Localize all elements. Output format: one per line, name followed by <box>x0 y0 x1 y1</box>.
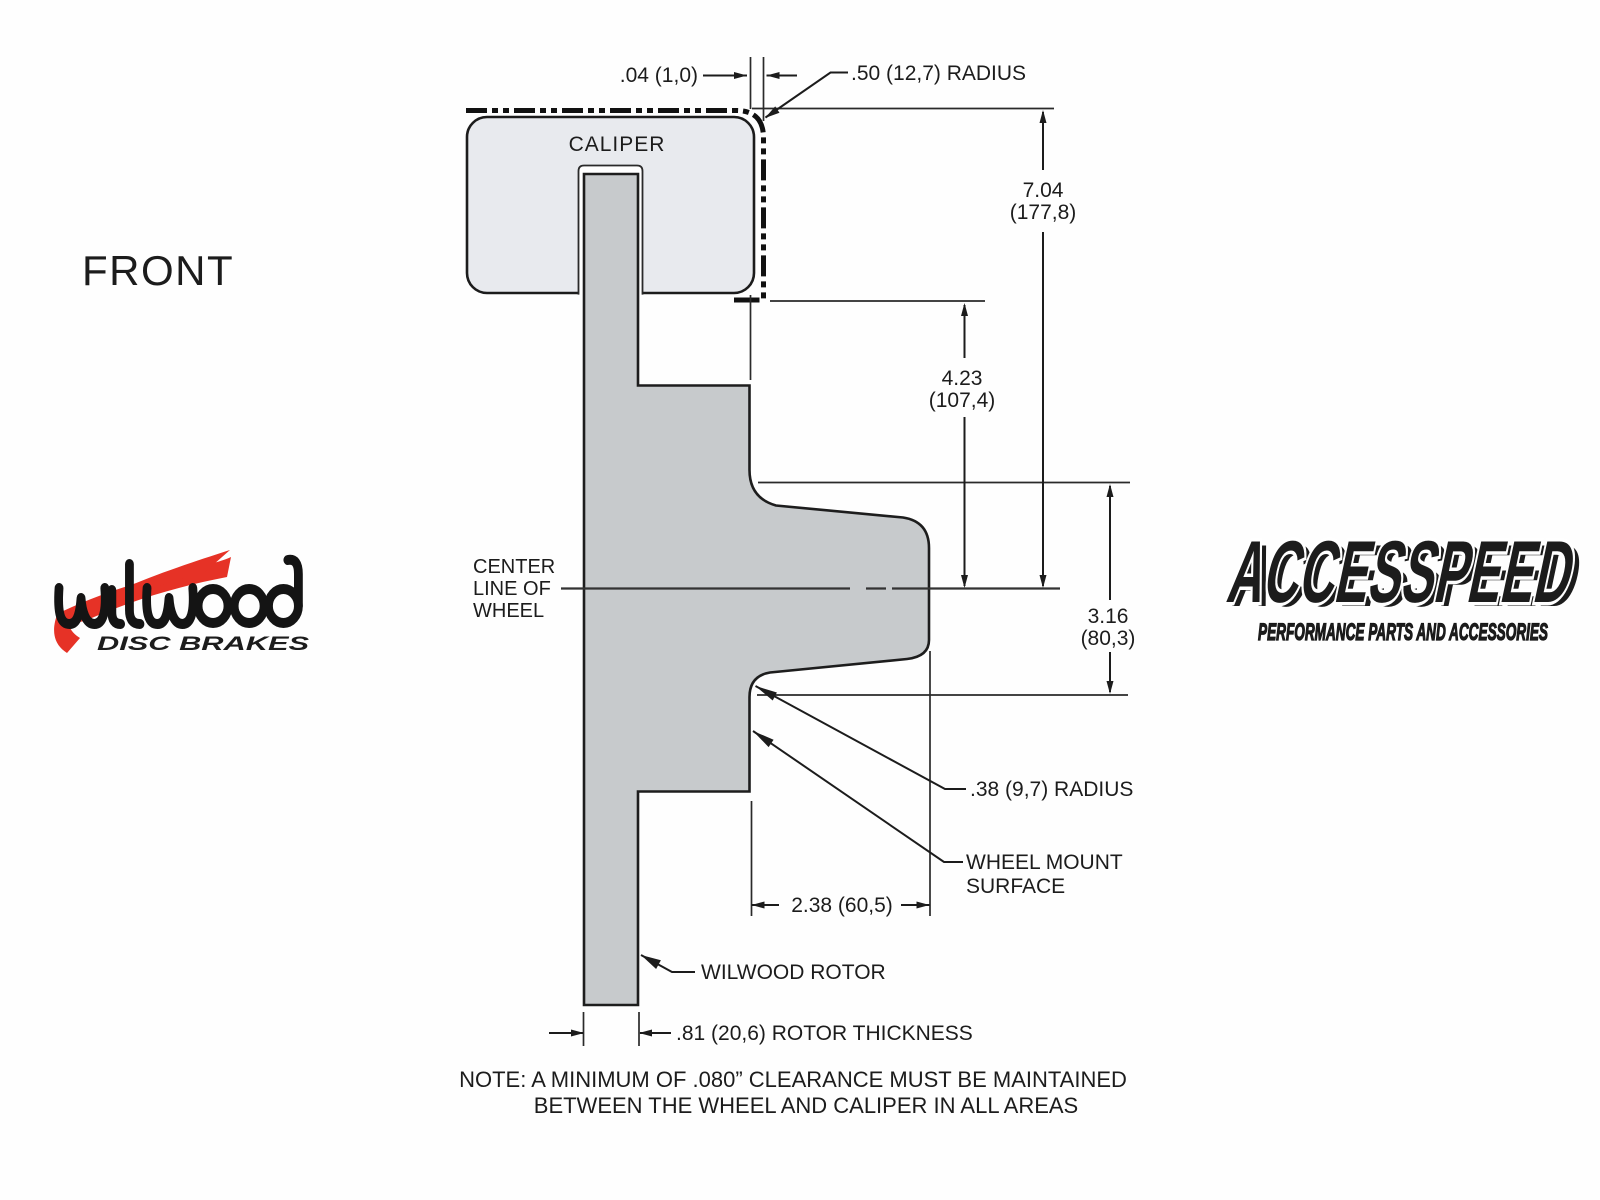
svg-text:LINE OF: LINE OF <box>473 578 551 600</box>
svg-text:(80,3): (80,3) <box>1081 627 1136 650</box>
svg-text:.04 (1,0): .04 (1,0) <box>620 64 698 87</box>
svg-text:DISC BRAKES: DISC BRAKES <box>97 634 310 655</box>
svg-text:BETWEEN THE WHEEL AND CALIPER: BETWEEN THE WHEEL AND CALIPER IN ALL ARE… <box>534 1093 1078 1118</box>
svg-text:2.38 (60,5): 2.38 (60,5) <box>791 894 893 917</box>
svg-text:PERFORMANCE PARTS AND ACCESSOR: PERFORMANCE PARTS AND ACCESSORIES <box>1258 619 1548 646</box>
svg-text:WILWOOD ROTOR: WILWOOD ROTOR <box>701 961 886 984</box>
svg-text:.38 (9,7) RADIUS: .38 (9,7) RADIUS <box>970 778 1133 801</box>
svg-text:WHEEL MOUNT: WHEEL MOUNT <box>966 851 1123 874</box>
svg-text:(107,4): (107,4) <box>929 389 996 412</box>
svg-text:SURFACE: SURFACE <box>966 875 1065 898</box>
svg-text:ACCESSPEED: ACCESSPEED <box>1221 522 1584 621</box>
svg-text:.81 (20,6) ROTOR THICKNESS: .81 (20,6) ROTOR THICKNESS <box>676 1022 973 1045</box>
svg-text:3.16: 3.16 <box>1088 605 1129 628</box>
svg-text:CALIPER: CALIPER <box>569 133 666 156</box>
svg-text:4.23: 4.23 <box>942 367 983 390</box>
svg-text:NOTE: A MINIMUM OF .080” CLEAR: NOTE: A MINIMUM OF .080” CLEARANCE MUST … <box>459 1067 1127 1092</box>
svg-text:FRONT: FRONT <box>82 247 234 294</box>
svg-text:7.04: 7.04 <box>1023 179 1064 202</box>
svg-text:.50 (12,7) RADIUS: .50 (12,7) RADIUS <box>851 62 1026 85</box>
svg-text:(177,8): (177,8) <box>1010 201 1077 224</box>
svg-text:WHEEL: WHEEL <box>473 600 544 622</box>
svg-text:CENTER: CENTER <box>473 556 555 578</box>
